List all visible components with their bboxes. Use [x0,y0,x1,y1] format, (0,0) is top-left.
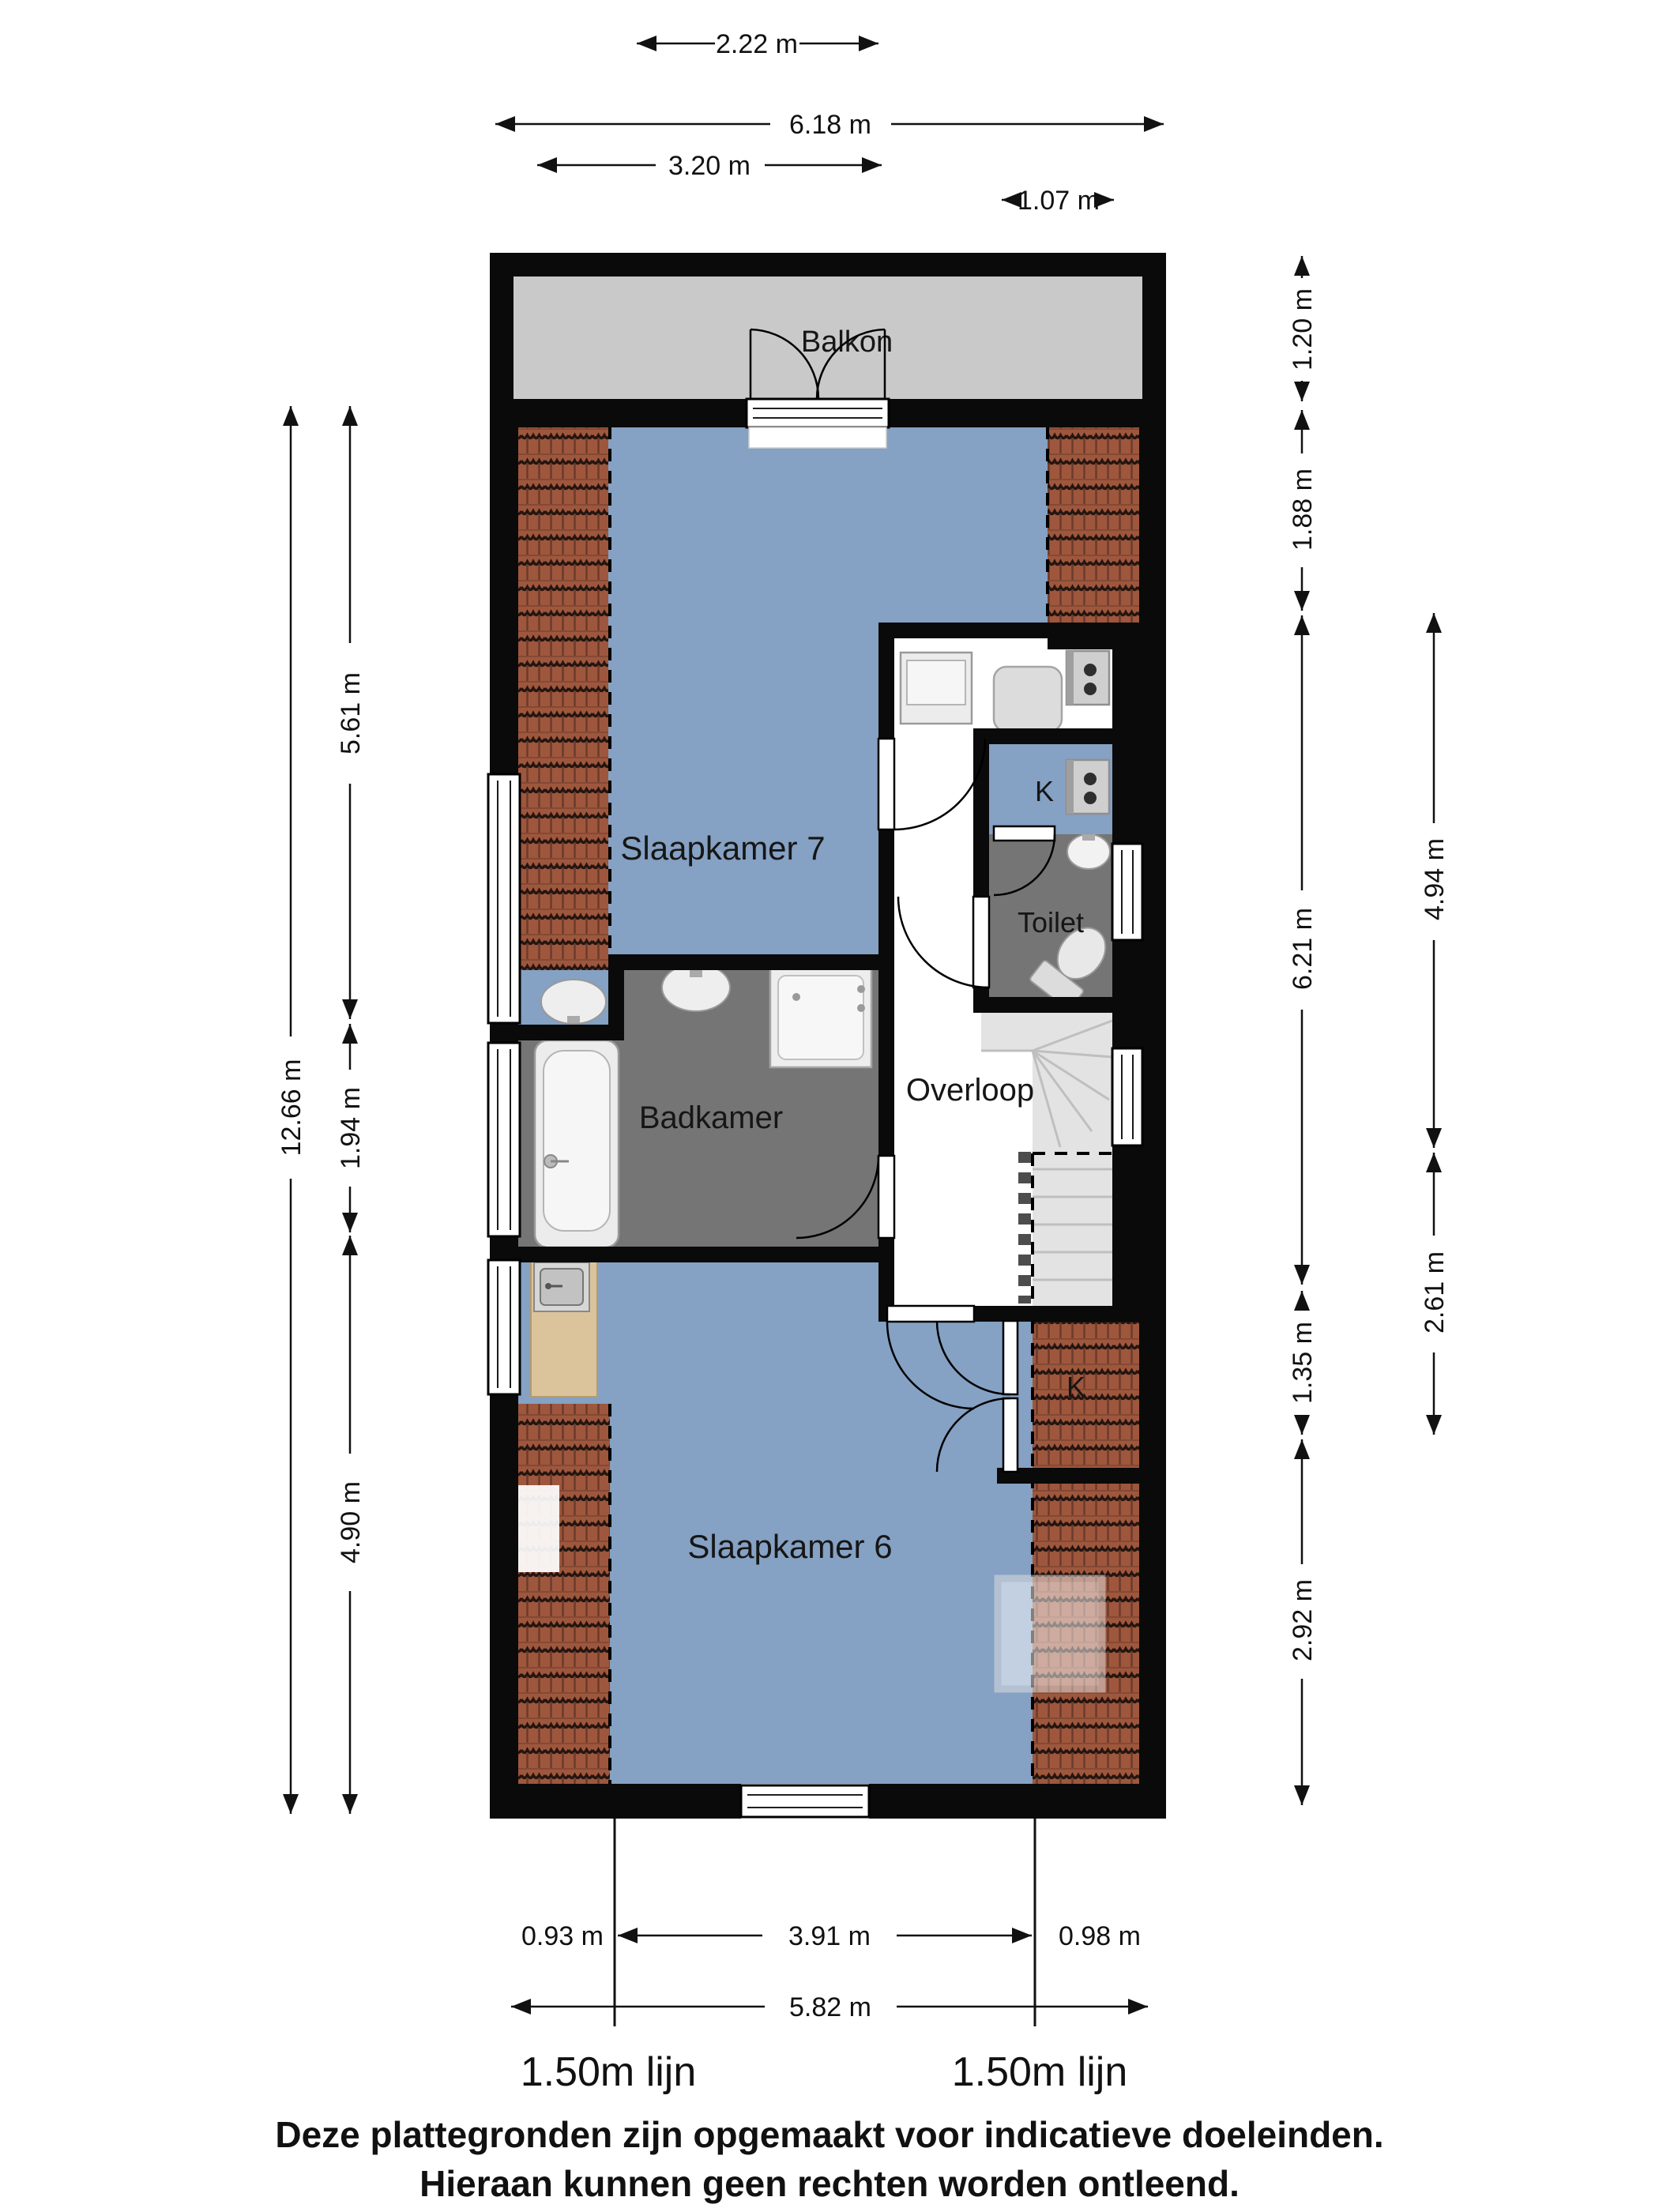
dim-bottom-093: 0.93 m [521,1921,604,1951]
svg-text:12.66 m: 12.66 m [276,1059,307,1157]
svg-text:2.61 m: 2.61 m [1420,1251,1450,1334]
dim-right-292: 2.92 m [1288,1439,1318,1805]
dim-right-188: 1.88 m [1288,410,1318,611]
overloop-label: Overloop [906,1073,1034,1108]
dimensions-right-outer: 4.94 m 2.61 m [1420,613,1450,1435]
kast-boven-boiler-icon [1066,760,1109,814]
roof-tiles-right-top [1048,427,1139,623]
balcony: Balkon [490,253,1166,403]
dim-left-1266: 12.66 m [276,406,307,1814]
bedroom-sink-tap [567,1016,580,1023]
badkamer-label: Badkamer [639,1100,783,1135]
toilet-label: Toilet [1018,906,1084,939]
balcony-wall-top [490,253,1166,276]
window-bottom [741,1785,869,1817]
balcony-wall-right [1142,253,1166,403]
window-stairs [1112,1048,1142,1145]
dim-top-107: 1.07 m [1002,186,1114,216]
svg-text:5.61 m: 5.61 m [336,672,366,754]
svg-text:1.88 m: 1.88 m [1288,468,1318,551]
dimensions-right-inner: 1.20 m 1.88 m 6.21 m 1.35 m 2.92 m [1288,256,1318,1805]
appliance-icon [994,667,1062,732]
kast-onder-label: K [1066,1371,1085,1403]
dim-right-621: 6.21 m [1288,615,1318,1285]
window-left-1 [488,774,520,1023]
svg-text:1.94 m: 1.94 m [336,1087,366,1169]
svg-text:6.21 m: 6.21 m [1288,908,1318,990]
shower-icon [770,968,871,1067]
svg-text:1.07 m: 1.07 m [1018,186,1100,216]
dim-right-120: 1.20 m [1288,256,1318,401]
toilet-sink-tap [1082,834,1095,841]
window-left-2 [488,1043,520,1236]
dim-right-494: 4.94 m [1420,613,1450,1148]
roof-tiles-right-bottom [1033,1321,1139,1784]
dim-right-261: 2.61 m [1420,1153,1450,1435]
slaapkamer7-label: Slaapkamer 7 [620,829,825,867]
svg-text:1.35 m: 1.35 m [1288,1322,1318,1404]
dim-left-561: 5.61 m [336,406,366,1019]
kast-boven-label: K [1035,775,1054,807]
svg-text:2.92 m: 2.92 m [1288,1579,1318,1661]
height-line-label-left: 1.50m lijn [521,2049,697,2095]
dimensions-bottom: 0.93 m 3.91 m 0.98 m 5.82 m 1.50m lijn 1… [511,1819,1148,2095]
dim-top-618: 6.18 m [495,110,1164,140]
dim-left-194: 1.94 m [336,1024,366,1232]
svg-text:4.94 m: 4.94 m [1420,838,1450,920]
dim-top-320: 3.20 m [537,151,882,181]
window-toilet [1112,844,1142,940]
washer-lid [907,660,965,705]
dim-bottom-582: 5.82 m [511,1992,1148,2022]
roof-tiles-left-top [517,427,608,970]
dim-bottom-391: 3.91 m [618,1921,1032,1951]
svg-text:1.20 m: 1.20 m [1288,288,1318,371]
svg-text:5.82 m: 5.82 m [789,1992,871,2022]
svg-text:4.90 m: 4.90 m [336,1481,366,1563]
svg-text:3.91 m: 3.91 m [788,1921,871,1951]
svg-text:3.20 m: 3.20 m [668,151,750,181]
floorplan-page: Balkon [0,0,1659,2212]
bathroom-sink-tap [690,970,702,977]
height-line-label-right: 1.50m lijn [952,2049,1128,2095]
bathtub-icon [535,1040,619,1247]
dimensions-top: 2.22 m 6.18 m 3.20 m 1.07 m [495,29,1164,216]
svg-text:2.22 m: 2.22 m [716,29,798,59]
slaapkamer7-sink [541,980,606,1024]
slaapkamer6-label: Slaapkamer 6 [687,1528,892,1565]
dim-right-135: 1.35 m [1288,1291,1318,1435]
pantry-counter [531,1258,597,1397]
disclaimer-line-2: Hieraan kunnen geen rechten worden ontle… [419,2163,1240,2204]
dim-top-222: 2.22 m [637,29,878,59]
roof-tiles-left-bottom [517,1404,610,1784]
skylight-icon [998,1578,1102,1689]
boiler-icon [1066,651,1109,705]
dim-left-490: 4.90 m [336,1236,366,1814]
dim-bottom-098: 0.98 m [1059,1921,1141,1951]
dormer-window-icon [517,1485,559,1572]
dimensions-left: 12.66 m 5.61 m 1.94 m 4.90 m [276,406,366,1814]
window-left-3 [488,1260,520,1394]
disclaimer-line-1: Deze plattegronden zijn opgemaakt voor i… [275,2114,1383,2155]
balcony-wall-left [490,253,513,403]
svg-text:6.18 m: 6.18 m [789,110,871,140]
